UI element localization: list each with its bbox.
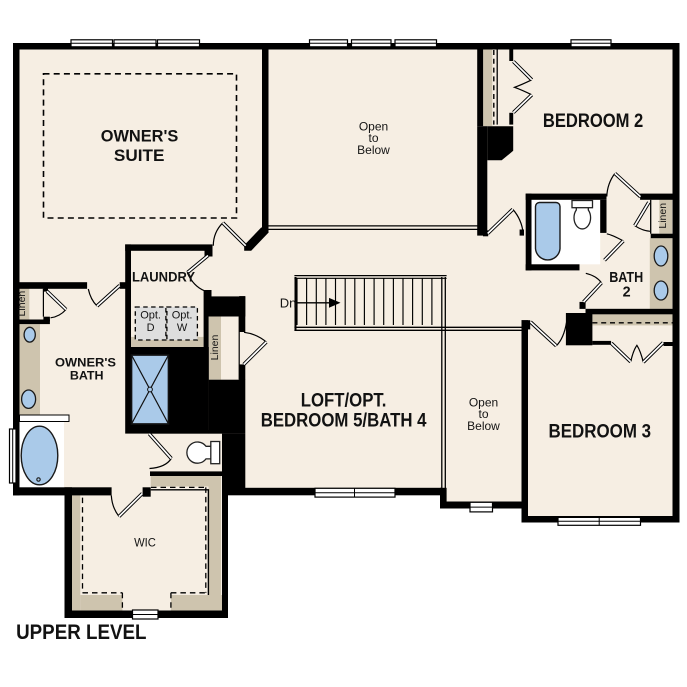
- svg-text:BEDROOM 3: BEDROOM 3: [549, 421, 652, 443]
- svg-text:Dn: Dn: [280, 295, 297, 310]
- svg-text:Below: Below: [357, 143, 390, 157]
- svg-text:OWNER'S: OWNER'S: [101, 126, 179, 145]
- svg-text:BATH: BATH: [70, 369, 104, 383]
- svg-text:UPPER LEVEL: UPPER LEVEL: [16, 620, 146, 644]
- svg-text:WIC: WIC: [134, 537, 156, 549]
- svg-text:W: W: [177, 322, 188, 334]
- svg-text:Linen: Linen: [209, 335, 221, 361]
- svg-text:BEDROOM 2: BEDROOM 2: [543, 110, 643, 132]
- svg-text:Linen: Linen: [657, 203, 669, 229]
- svg-text:LAUNDRY: LAUNDRY: [132, 270, 195, 285]
- svg-text:Opt.: Opt.: [140, 310, 161, 322]
- svg-text:Opt.: Opt.: [172, 310, 193, 322]
- svg-text:SUITE: SUITE: [114, 146, 165, 165]
- svg-text:LOFT/OPT.: LOFT/OPT.: [301, 390, 387, 411]
- svg-text:Below: Below: [467, 419, 500, 433]
- svg-text:BEDROOM 5/BATH 4: BEDROOM 5/BATH 4: [261, 410, 427, 431]
- svg-text:OWNER'S: OWNER'S: [55, 355, 116, 369]
- svg-text:Linen: Linen: [16, 291, 28, 317]
- svg-text:2: 2: [623, 284, 631, 300]
- svg-text:D: D: [147, 322, 155, 334]
